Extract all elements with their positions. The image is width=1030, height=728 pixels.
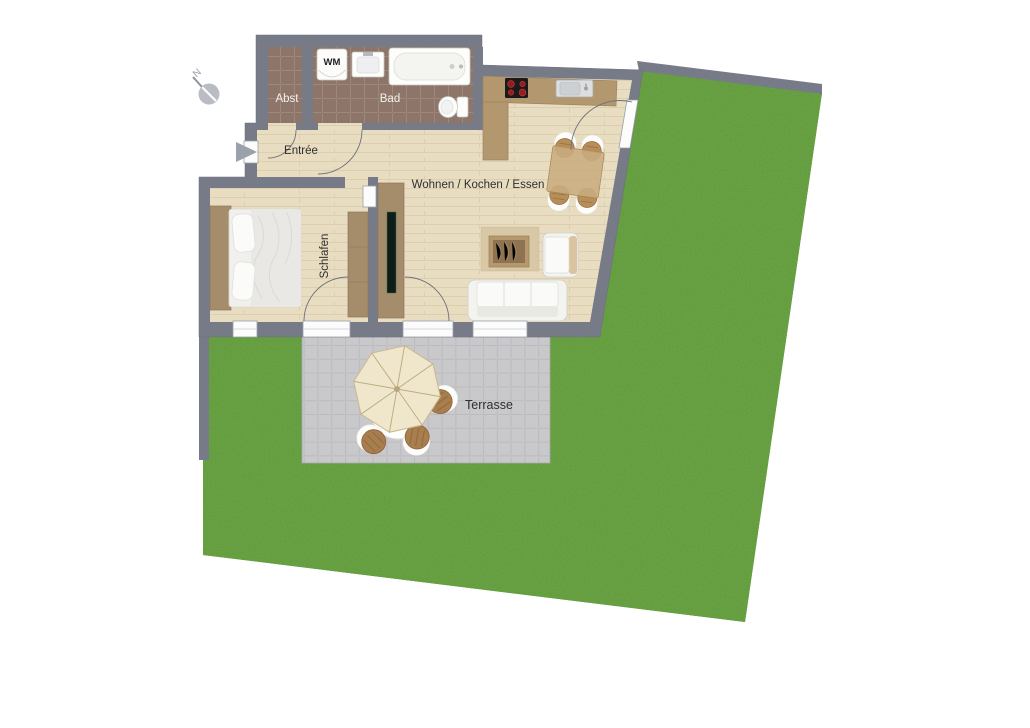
wall-bathroom-kitchen — [473, 47, 483, 130]
bathroom-door-opening — [318, 123, 362, 130]
garden-wall-left — [199, 333, 209, 460]
bedroom-label: Schlafen — [319, 234, 331, 279]
wall-bedroom-top — [199, 177, 345, 188]
toilet — [439, 97, 469, 118]
bed-pillow — [231, 261, 255, 301]
washing-machine-label: WM — [324, 57, 341, 68]
dining-set — [546, 131, 605, 216]
floor-plan-page: WM — [0, 0, 1030, 728]
dining-table — [547, 146, 605, 199]
wall-storage-bathroom — [302, 47, 313, 123]
living-kitchen-dining-label: Wohnen / Kochen / Essen — [412, 179, 545, 191]
entry-label: Entrée — [284, 145, 318, 157]
kitchen-sink — [556, 80, 593, 97]
floor-plan-drawing: WM — [0, 0, 1030, 728]
bedroom-door-leaf — [363, 186, 376, 207]
bed-pillow — [231, 213, 255, 253]
wardrobe — [348, 212, 368, 317]
cooktop — [505, 78, 528, 98]
bathtub — [389, 48, 470, 85]
wall-bedroom-living-divider — [368, 188, 378, 322]
terrace-label: Terrasse — [465, 398, 513, 412]
storage-room-floor — [268, 47, 302, 123]
armchair — [543, 233, 578, 277]
rug-and-coffee-table — [481, 227, 539, 271]
storage-door-opening — [268, 123, 296, 130]
double-bed — [210, 206, 301, 310]
tv-screen — [387, 212, 396, 293]
washing-machine: WM — [317, 49, 347, 80]
compass: N — [191, 67, 220, 105]
sofa — [468, 280, 567, 321]
storage-label: Abst — [275, 93, 299, 105]
tv-sideboard — [378, 183, 404, 318]
bed-headboard — [210, 206, 231, 310]
bathroom-label: Bad — [380, 93, 400, 105]
bathroom-sink — [352, 52, 384, 77]
